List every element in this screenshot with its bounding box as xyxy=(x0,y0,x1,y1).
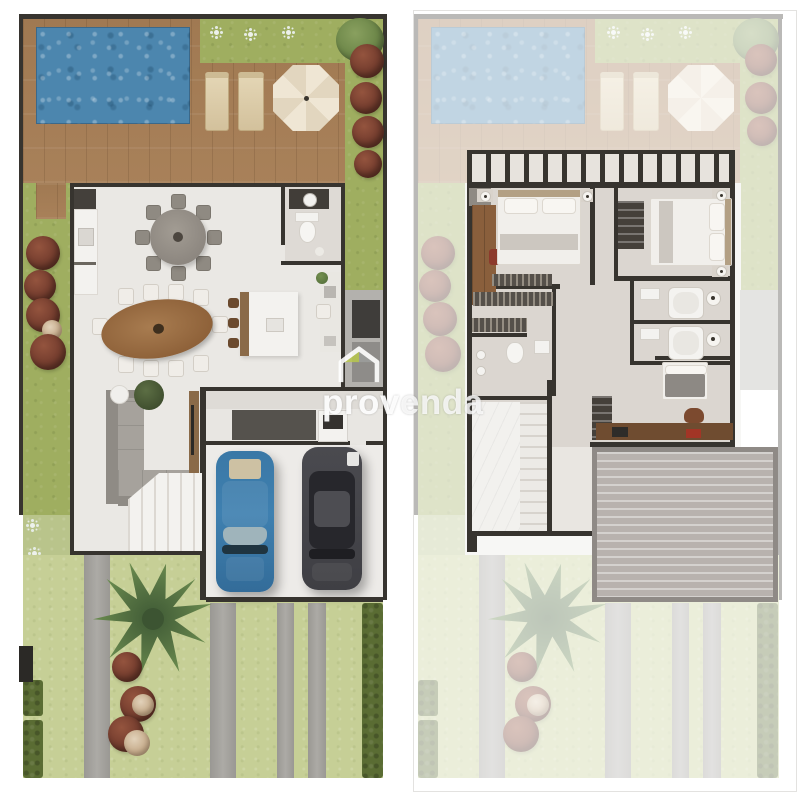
railing-end-post xyxy=(467,150,472,186)
bathroom-sink xyxy=(534,340,550,354)
closet-rack xyxy=(472,318,527,332)
upper-floor-panel xyxy=(0,0,807,800)
bed-gray-blanket xyxy=(665,374,705,397)
shower-head xyxy=(476,350,486,360)
ensuite-wall-top xyxy=(467,333,527,337)
office-wall-bottom xyxy=(590,442,735,447)
master-bed xyxy=(497,189,581,265)
bathtub-inner xyxy=(673,331,699,355)
bedroom2-bed xyxy=(650,198,732,266)
floorplan-collage: provenda xyxy=(0,0,807,800)
upper-wall-top xyxy=(467,184,735,188)
bed-pillow xyxy=(709,203,725,231)
desk-red-box xyxy=(686,429,701,438)
bedside-lamp xyxy=(582,191,593,202)
bathtub xyxy=(668,326,704,360)
toilet-dot xyxy=(711,337,715,341)
office-desk xyxy=(596,423,733,440)
stair-wall-right xyxy=(547,380,552,531)
bedside-lamp xyxy=(716,190,727,201)
balcony-railing xyxy=(467,150,735,186)
bed-blanket-fold xyxy=(659,201,673,263)
lamp-dot xyxy=(720,194,723,197)
bed-blanket-fold xyxy=(500,234,578,250)
lamp-dot xyxy=(586,195,589,198)
garage-roof xyxy=(592,447,778,602)
ensuite-wall-bottom xyxy=(467,396,552,400)
bed-headboard xyxy=(725,199,731,265)
toilet-dot xyxy=(711,296,715,300)
bed-pillow xyxy=(504,198,538,214)
bed-pillow xyxy=(709,233,725,261)
stair-wall-bottom xyxy=(467,531,592,536)
bedside-lamp xyxy=(480,191,491,202)
bed-headboard xyxy=(498,190,580,197)
bedroom3-bed xyxy=(662,362,708,400)
desk-chair xyxy=(684,408,704,423)
toilet-round xyxy=(706,291,721,306)
bedside-lamp xyxy=(716,266,727,277)
toilet xyxy=(506,342,524,364)
bathtub xyxy=(668,287,704,319)
bedroom-dresser xyxy=(492,274,552,286)
bedroom2-closet xyxy=(618,201,644,249)
toilet-round xyxy=(706,332,721,347)
desk-laptop xyxy=(612,427,628,437)
stair-treads xyxy=(520,402,547,531)
bathroom-sink xyxy=(640,288,660,300)
door-jamb xyxy=(467,536,477,552)
railing-end-post xyxy=(729,150,735,186)
lamp-dot xyxy=(720,270,723,273)
bathtub-inner xyxy=(673,292,699,314)
lamp-dot xyxy=(484,195,487,198)
closet-rack xyxy=(473,292,553,306)
bathroom-divider-wall xyxy=(630,320,735,324)
shower-head xyxy=(476,366,486,376)
bathroom-sink xyxy=(640,328,660,340)
bed-pillow xyxy=(542,198,576,214)
